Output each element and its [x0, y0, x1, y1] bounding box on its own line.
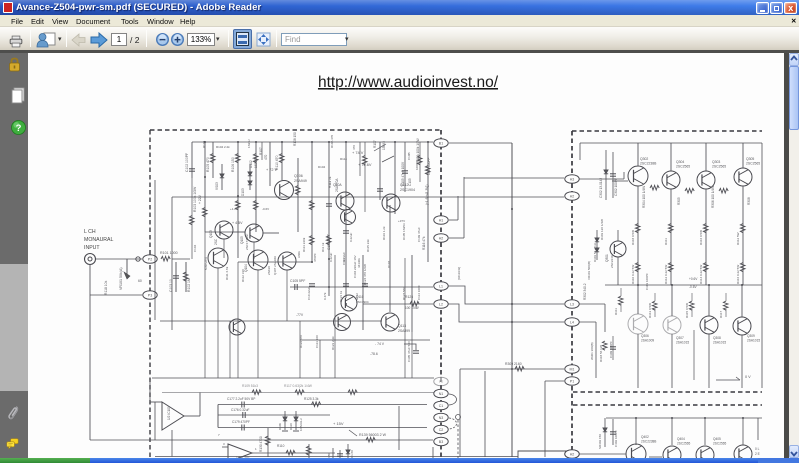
svg-text:R314 0.22 5W: R314 0.22 5W: [699, 265, 703, 284]
svg-text:C304 220uF 16V: C304 220uF 16V: [353, 255, 357, 278]
svg-text:2SC2565: 2SC2565: [713, 442, 727, 446]
svg-text:R109 51k3: R109 51k3: [242, 384, 258, 388]
svg-text:http://www.audioinvest.no/: http://www.audioinvest.no/: [318, 74, 499, 91]
svg-text:0.22uF: 0.22uF: [349, 232, 353, 242]
svg-text:MONAURAL: MONAURAL: [84, 237, 114, 243]
svg-text:44130k: 44130k: [357, 258, 361, 268]
svg-text:2SA1015: 2SA1015: [713, 341, 726, 345]
svg-text:INPUT: INPUT: [84, 245, 100, 251]
svg-text:C179 470PF: C179 470PF: [232, 420, 250, 424]
svg-text:Q103: Q103: [209, 230, 213, 238]
svg-text:2SC1775AF: 2SC1775AF: [245, 233, 249, 250]
svg-text:-77V: -77V: [296, 313, 304, 317]
svg-text:R110: R110: [277, 444, 285, 448]
svg-text:0.47k: 0.47k: [323, 292, 327, 300]
svg-text:R106 150: R106 150: [231, 157, 235, 172]
svg-text:1N5232-2: 1N5232-2: [299, 418, 303, 431]
svg-text:100 1/4W: 100 1/4W: [405, 306, 419, 310]
svg-text:2SA970A: 2SA970A: [335, 178, 339, 192]
svg-text:2SA949: 2SA949: [294, 179, 307, 183]
svg-text:P2: P2: [148, 258, 152, 262]
svg-text:M1: M1: [570, 368, 575, 372]
svg-text:R130 4700: R130 4700: [259, 436, 263, 452]
svg-text:-0.6V: -0.6V: [689, 285, 697, 289]
svg-text:R312 5W: R312 5W: [736, 232, 740, 245]
svg-text:2SC2565: 2SC2565: [677, 442, 691, 446]
svg-text:R126: R126: [405, 295, 413, 299]
svg-text:R317: R317: [719, 310, 723, 318]
svg-text:R305: R305: [677, 197, 681, 205]
svg-text:R114: R114: [340, 157, 347, 161]
svg-text:A60k: A60k: [297, 251, 301, 258]
svg-text:1S95J: 1S95J: [247, 139, 251, 148]
svg-text:470: 470: [264, 154, 268, 160]
svg-text:2SA899: 2SA899: [398, 329, 410, 333]
svg-text:2SC2240: 2SC2240: [610, 255, 614, 268]
svg-text:2SC2238B: 2SC2238B: [640, 162, 657, 166]
svg-text:R125 3.3k: R125 3.3k: [304, 397, 319, 401]
svg-text:2SA1009: 2SA1009: [641, 339, 654, 343]
svg-text:+37V: +37V: [398, 219, 405, 223]
svg-text:7: 7: [218, 433, 220, 437]
svg-text:Q303: Q303: [712, 160, 720, 164]
svg-text:Q404: Q404: [677, 437, 685, 441]
svg-text:K30 UY4: K30 UY4: [204, 257, 208, 270]
svg-text:P1: P1: [570, 380, 574, 384]
svg-text:R316 0.22 5W: R316 0.22 5W: [736, 265, 740, 284]
svg-text:R309 2160: R309 2160: [505, 362, 522, 366]
svg-text:2 E: 2 E: [755, 452, 760, 456]
svg-text:R118 10k: R118 10k: [104, 280, 108, 295]
svg-text:R107: R107: [373, 140, 377, 148]
svg-text:R104 2.2k: R104 2.2k: [216, 145, 230, 149]
svg-text:1/2 IC101: 1/2 IC101: [167, 406, 171, 420]
svg-text:N1: N1: [439, 392, 444, 396]
svg-text:R304 100 1/4W: R304 100 1/4W: [642, 186, 646, 208]
svg-text:3: 3: [223, 442, 225, 446]
svg-text:R127 560: R127 560: [402, 287, 406, 300]
svg-text:R315 0.5W: R315 0.5W: [685, 303, 689, 318]
svg-text:C2: C2: [439, 428, 444, 432]
svg-text:2SA1015: 2SA1015: [747, 339, 760, 343]
svg-text:2SA1015: 2SA1015: [676, 341, 689, 345]
svg-text:2SC2238B: 2SC2238B: [641, 440, 656, 444]
svg-text:R123 2.2k: R123 2.2k: [331, 336, 335, 350]
svg-text:C111 100PF: C111 100PF: [427, 158, 431, 175]
svg-text:H2: H2: [570, 453, 575, 457]
svg-text:+ 72 V: + 72 V: [266, 168, 278, 172]
svg-text:R107: R107: [259, 147, 263, 155]
svg-text:VR101 50k(A): VR101 50k(A): [119, 267, 123, 290]
svg-text:Q106: Q106: [294, 174, 303, 178]
svg-text:D109: D109: [278, 423, 282, 430]
svg-text:2SC2565: 2SC2565: [746, 162, 760, 166]
svg-text:R313 0.5W: R313 0.5W: [648, 303, 652, 318]
svg-text:R306 100 1/4W: R306 100 1/4W: [711, 186, 715, 208]
svg-text:- 74 V: - 74 V: [375, 342, 385, 346]
svg-text:2SK30: 2SK30: [267, 266, 271, 275]
svg-text:Q402: Q402: [641, 435, 649, 439]
svg-text:H1: H1: [439, 219, 444, 223]
svg-text:H3: H3: [570, 178, 575, 182]
svg-text:H2: H2: [439, 237, 444, 241]
svg-text:0.22uF: 0.22uF: [329, 252, 333, 262]
svg-text:100PF: 100PF: [415, 161, 419, 170]
svg-text:0 V: 0 V: [745, 375, 751, 379]
svg-text:R11 1k: R11 1k: [321, 242, 325, 252]
svg-text:C10 22uF: C10 22uF: [307, 287, 311, 300]
svg-text:R111 51: R111 51: [328, 176, 332, 188]
svg-text:R101 1000: R101 1000: [160, 251, 178, 255]
svg-text:+0.6V: +0.6V: [689, 277, 698, 281]
svg-text:C10B: C10B: [407, 152, 411, 160]
svg-text:P3: P3: [148, 294, 152, 298]
svg-text:R316 0.5W: R316 0.5W: [699, 230, 703, 245]
svg-text:Q107 2SA949: Q107 2SA949: [273, 256, 277, 275]
svg-text:VR301 500(B): VR301 500(B): [587, 261, 591, 280]
svg-text:R302 340.2: R302 340.2: [583, 283, 587, 300]
svg-text:R119 1.2k: R119 1.2k: [382, 226, 386, 240]
svg-text:2SC2565: 2SC2565: [676, 165, 690, 169]
svg-text:+ 15V: + 15V: [333, 421, 344, 426]
svg-text:D107: D107: [387, 260, 391, 268]
svg-text:R105 470: R105 470: [206, 157, 210, 172]
svg-text:R103 100k 1/3W: R103 100k 1/3W: [193, 186, 197, 212]
svg-text:Q405: Q405: [713, 437, 721, 441]
svg-text:D110: D110: [289, 423, 293, 430]
svg-text:VS03: VS03: [215, 182, 219, 190]
svg-text:Q105: Q105: [240, 236, 244, 244]
svg-text:C105: C105: [408, 178, 412, 186]
svg-text:[4611943]: [4611943]: [457, 267, 461, 280]
svg-text:R303 120 1/4W: R303 120 1/4W: [600, 219, 604, 240]
svg-text:R310 0.22 5W: R310 0.22 5W: [631, 265, 635, 284]
svg-text:Q306: Q306: [641, 334, 649, 338]
svg-text:?: ?: [16, 123, 22, 134]
svg-text:P2: P2: [439, 380, 443, 384]
svg-text:D102: D102: [249, 160, 253, 168]
svg-text:C1: C1: [439, 404, 444, 408]
svg-text:R122 47k: R122 47k: [299, 335, 303, 348]
svg-text:C114 10PF: C114 10PF: [417, 285, 421, 300]
svg-text:R312 0.22 5W: R312 0.22 5W: [664, 265, 668, 284]
svg-text:Q301: Q301: [605, 254, 609, 262]
svg-text:470PF: 470PF: [313, 253, 317, 262]
svg-text:R102 1M: R102 1M: [187, 278, 191, 292]
svg-text:D105 1S953: D105 1S953: [402, 223, 406, 240]
svg-text:R115 22k: R115 22k: [366, 239, 370, 252]
svg-text:C109 47uF: C109 47uF: [417, 227, 421, 242]
svg-text:C113 100: C113 100: [315, 335, 319, 348]
svg-text:C104: C104: [193, 244, 197, 252]
svg-text:H2: H2: [570, 195, 575, 199]
svg-text:(+1.6[+41.3V]): (+1.6[+41.3V]): [425, 185, 429, 205]
svg-text:Q304: Q304: [676, 160, 684, 164]
svg-text:Q307: Q307: [676, 336, 684, 340]
svg-text:C302 13-0142: C302 13-0142: [599, 178, 603, 198]
svg-text:2SC2565: 2SC2565: [712, 165, 726, 169]
svg-text:1: 1: [255, 447, 257, 451]
svg-text:C177 2.2uF 50V BP: C177 2.2uF 50V BP: [227, 397, 255, 401]
svg-text:+1.2V: +1.2V: [230, 207, 238, 211]
svg-text:C105 5PF: C105 5PF: [290, 279, 305, 283]
svg-text:W301 300(B): W301 300(B): [590, 342, 594, 360]
svg-text:L2: L2: [439, 303, 443, 307]
svg-text:G 22uF: G 22uF: [342, 252, 346, 262]
svg-text:R11A 100k 1/3W: R11A 100k 1/3W: [416, 138, 420, 162]
svg-text:0 L: 0 L: [755, 447, 760, 451]
svg-text:R112 330: R112 330: [241, 269, 245, 282]
svg-text:L3: L3: [570, 303, 574, 307]
svg-text:C303 100PF: C303 100PF: [645, 273, 649, 290]
svg-text:R10A 470: R10A 470: [330, 134, 334, 148]
svg-text:R308: R308: [747, 197, 751, 205]
svg-text:60: 60: [138, 279, 142, 283]
svg-text:C112: C112: [355, 293, 359, 300]
svg-text:C108 13PF: C108 13PF: [327, 234, 331, 250]
svg-text:R117 0.63|2k 1/4W: R117 0.63|2k 1/4W: [284, 384, 313, 388]
svg-text:R111 6.8k: R111 6.8k: [225, 266, 229, 280]
svg-text:-78.6: -78.6: [370, 352, 378, 356]
svg-text:B3: B3: [439, 440, 443, 444]
svg-text:C402 100PF: C402 100PF: [614, 430, 618, 447]
svg-text:N3: N3: [439, 416, 444, 420]
svg-text:R113 220k: R113 220k: [302, 237, 306, 252]
svg-text:B1: B1: [439, 142, 443, 146]
svg-text:L4: L4: [570, 321, 574, 325]
svg-text:470: 470: [352, 145, 356, 150]
svg-text:+ 22V: + 22V: [198, 194, 202, 204]
svg-text:Q309: Q309: [747, 334, 755, 338]
svg-text:R124 470 1/2W: R124 470 1/2W: [363, 264, 367, 285]
svg-text:R318 0.5W: R318 0.5W: [631, 230, 635, 245]
svg-text:R121 1k: R121 1k: [339, 290, 343, 302]
svg-text:D301 51+V1H: D301 51+V1H: [593, 243, 597, 262]
svg-text:D104: D104: [318, 165, 326, 169]
svg-text:Q305: Q305: [746, 157, 754, 161]
svg-text:1S953: 1S953: [254, 159, 258, 168]
svg-text:R311: R311: [614, 308, 618, 315]
svg-text:Q302: Q302: [640, 157, 648, 161]
svg-text:D103: D103: [241, 188, 245, 196]
svg-text:L CH: L CH: [84, 229, 96, 235]
svg-text:SR402 150: SR402 150: [598, 434, 602, 449]
svg-text:2SC: 2SC: [214, 238, 218, 245]
svg-text:C102 100PF: C102 100PF: [185, 153, 189, 172]
svg-text:R311: R311: [664, 238, 668, 245]
svg-text:L1: L1: [439, 285, 443, 289]
svg-text:R108 150: R108 150: [293, 132, 297, 146]
svg-text:R318 56 1W: R318 56 1W: [599, 345, 603, 362]
svg-text:-0.6V: -0.6V: [262, 207, 269, 211]
svg-text:+ 4.5V: + 4.5V: [232, 221, 243, 225]
svg-text:Q308: Q308: [713, 336, 721, 340]
svg-text:R139 56003 2 W: R139 56003 2 W: [359, 433, 387, 437]
svg-text:C176 0.32uF: C176 0.32uF: [231, 408, 249, 412]
svg-text:2SC1904: 2SC1904: [400, 188, 415, 192]
svg-text:R116 47k: R116 47k: [422, 236, 426, 250]
